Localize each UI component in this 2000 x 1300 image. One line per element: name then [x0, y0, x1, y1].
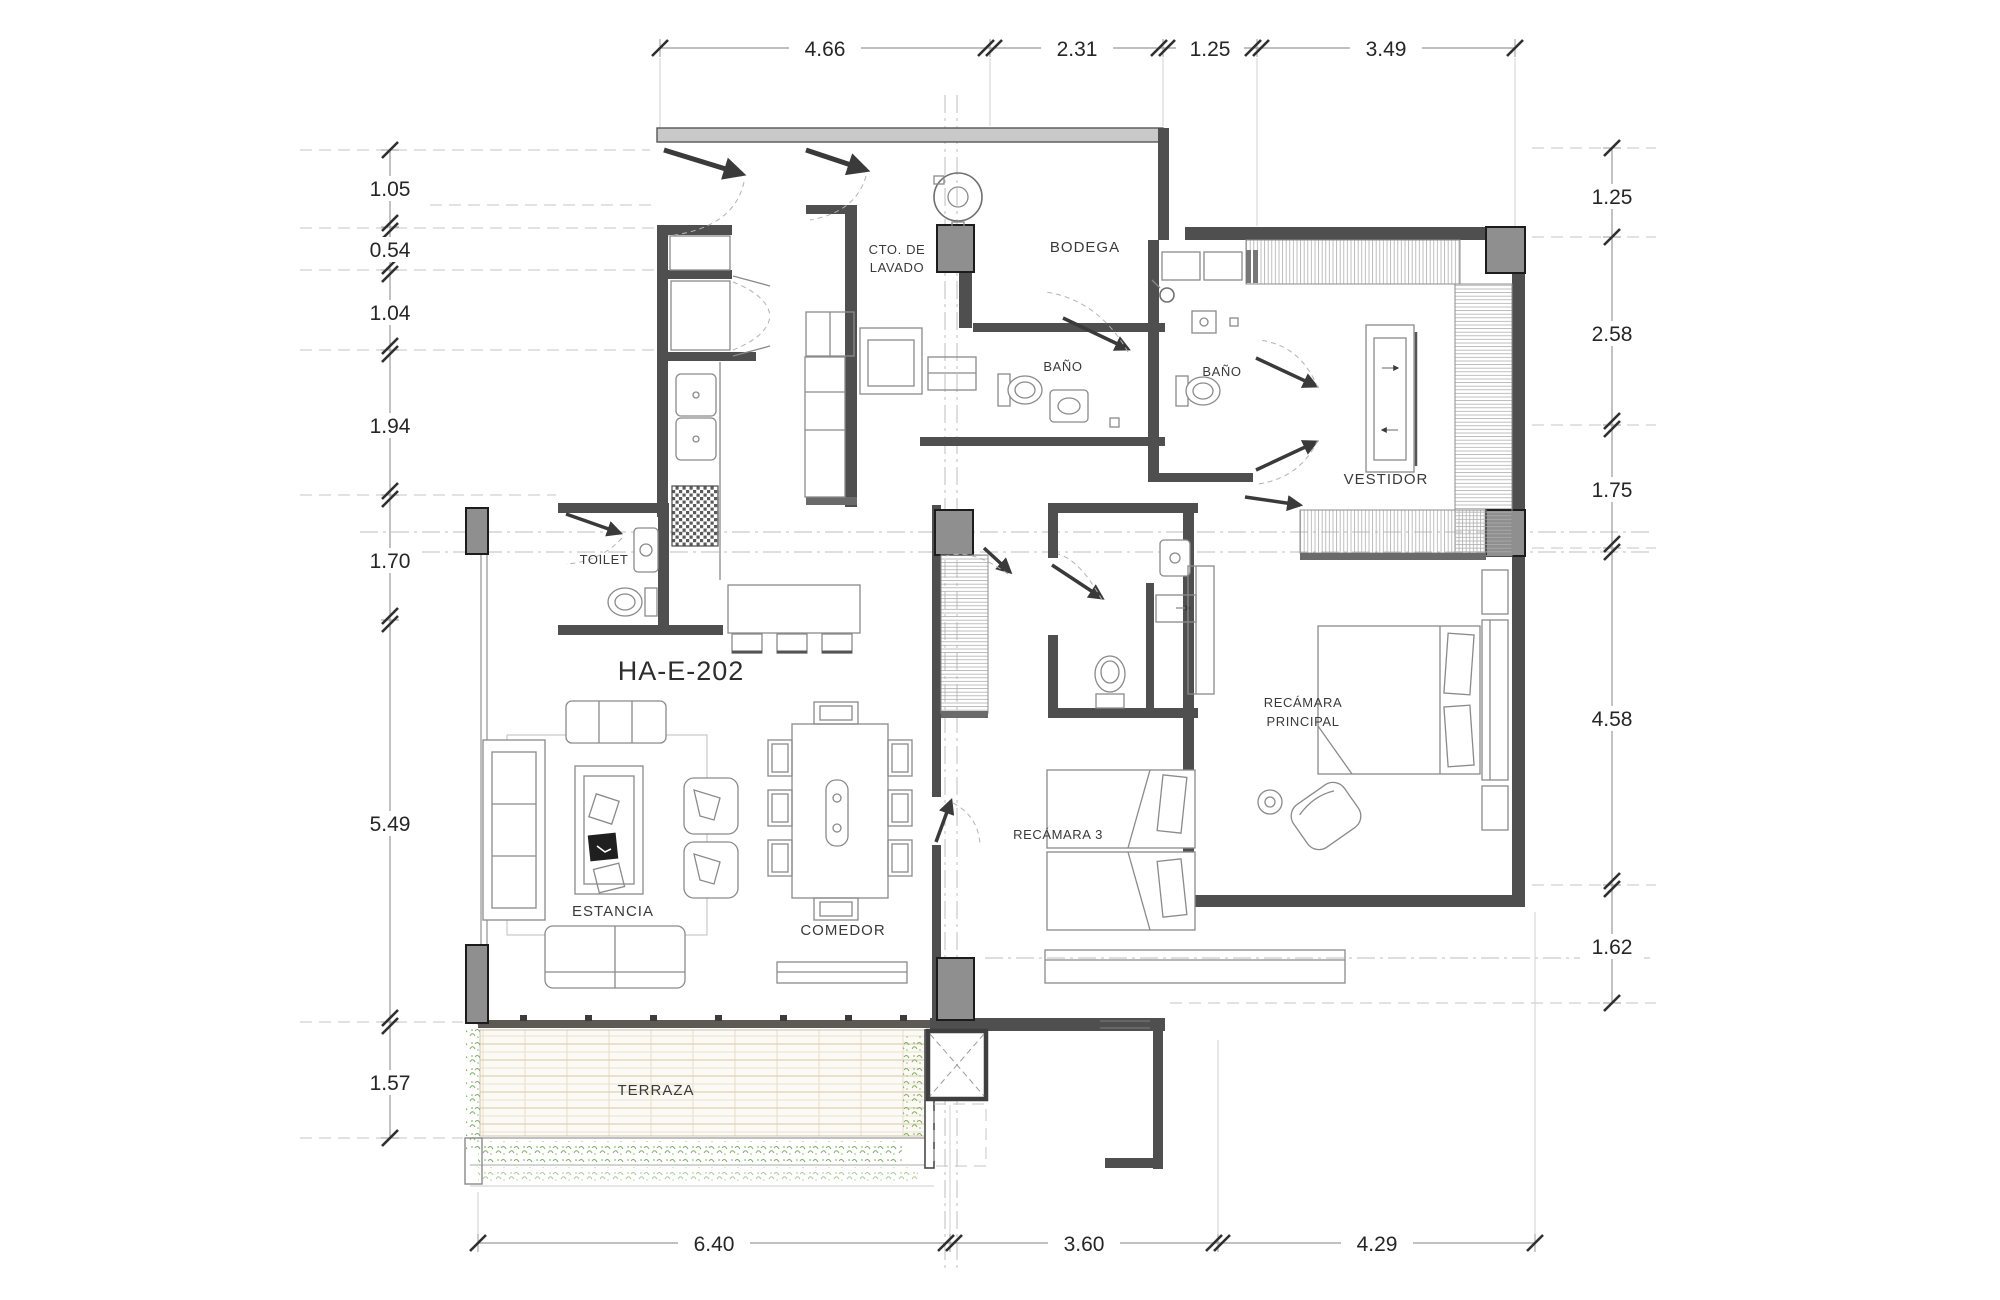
dim-bottom-1: 3.60	[1064, 1233, 1105, 1256]
terrace-area	[465, 1010, 936, 1186]
bar-stool	[777, 634, 807, 653]
dim-left-6: 1.57	[370, 1072, 411, 1095]
stove	[672, 486, 718, 546]
dim-left-4: 1.70	[370, 550, 411, 573]
washbasin	[1050, 390, 1088, 422]
kitchen-island	[728, 585, 860, 633]
floor-plan-canvas: CTO. DE LAVADO BODEGA BAÑO BAÑO VESTIDOR…	[0, 0, 2000, 1300]
dim-bottom-0: 6.40	[694, 1233, 735, 1256]
room-label-terraza: TERRAZA	[617, 1082, 694, 1099]
room-label-bano-2: BAÑO	[1202, 364, 1241, 379]
lounge-chair	[1286, 777, 1367, 855]
room-labels: CTO. DE LAVADO BODEGA BAÑO BAÑO VESTIDOR…	[572, 239, 1428, 1099]
decor-item	[588, 833, 619, 862]
column	[937, 225, 974, 272]
wc	[1008, 376, 1042, 404]
washbasin	[634, 528, 658, 572]
floor-plan-drawing: CTO. DE LAVADO BODEGA BAÑO BAÑO VESTIDOR…	[0, 0, 2000, 1300]
recamara3-closet	[941, 555, 988, 713]
dining-table	[792, 724, 888, 898]
vestidor-closet-top	[1246, 240, 1460, 284]
dim-top-0: 4.66	[805, 38, 846, 61]
dim-top-3: 3.49	[1366, 38, 1407, 61]
dimension-chain-right: 1.25 2.58 1.75 4.58 1.62	[1580, 140, 1644, 1011]
dim-top-2: 1.25	[1190, 38, 1231, 61]
dim-right-1: 2.58	[1592, 323, 1633, 346]
side-table	[1258, 790, 1282, 814]
dim-left-3: 1.94	[370, 415, 411, 438]
room-label-cto-lavado: CTO. DE	[869, 242, 926, 257]
room-label-vestidor: VESTIDOR	[1344, 471, 1429, 488]
vestidor-island	[1366, 325, 1414, 472]
dim-right-0: 1.25	[1592, 186, 1633, 209]
column	[466, 945, 488, 1023]
dim-left-0: 1.05	[370, 178, 411, 201]
washbasin	[1160, 540, 1190, 576]
bar-stool	[732, 634, 762, 653]
room-label-recamara-3: RECÁMARA 3	[1013, 827, 1103, 842]
entry-door	[664, 150, 744, 236]
sofa	[566, 701, 666, 743]
shower-box	[1204, 252, 1242, 280]
nightstand	[1482, 570, 1508, 614]
unit-label: HA-E-202	[618, 656, 745, 686]
dim-left-5: 5.49	[370, 813, 411, 836]
recamara3-bath-door	[1052, 554, 1102, 600]
ledge	[1045, 950, 1345, 983]
upper-cabinet	[670, 236, 730, 270]
column	[1486, 227, 1525, 273]
kitchen-counter	[805, 357, 845, 497]
bedroom-furniture	[1045, 325, 1508, 983]
wc	[608, 588, 642, 616]
hall-bath-door	[1046, 292, 1128, 352]
column	[937, 958, 974, 1020]
recamara3-door	[936, 801, 980, 844]
dimension-chain-bottom: 6.40 3.60 4.29	[470, 1229, 1543, 1257]
shower-box	[1162, 252, 1200, 280]
wc-tank	[1096, 694, 1124, 708]
washbasin	[1192, 311, 1216, 333]
armchair	[684, 778, 738, 834]
refrigerator	[671, 281, 730, 350]
service-shaft	[928, 1031, 986, 1166]
bed-principal	[1318, 626, 1480, 774]
living-dining-furniture	[483, 701, 912, 988]
water-heater	[934, 173, 982, 221]
dim-left-2: 1.04	[370, 302, 411, 325]
nightstand	[1482, 786, 1508, 830]
room-label-toilet: TOILET	[580, 552, 629, 567]
kitchen-sink	[676, 418, 716, 460]
dimension-chain-top: 4.66 2.31 1.25 3.49	[652, 34, 1523, 62]
dim-bottom-2: 4.29	[1357, 1233, 1398, 1256]
room-label-bodega: BODEGA	[1050, 239, 1120, 256]
coffee-table	[575, 766, 643, 894]
laundry-appliance	[860, 328, 922, 394]
dim-right-4: 1.62	[1592, 936, 1633, 959]
vestidor-closet-bottom	[1300, 510, 1486, 553]
dim-right-3: 4.58	[1592, 708, 1633, 731]
wc	[1186, 377, 1220, 405]
dim-left-1: 0.54	[370, 239, 411, 262]
wc-tank	[645, 588, 657, 616]
bano2-double-door	[1256, 340, 1318, 484]
shower-head	[1160, 288, 1174, 302]
room-label-bano-1: BAÑO	[1043, 359, 1082, 374]
kitchen-sink	[676, 374, 716, 416]
room-label-comedor: COMEDOR	[800, 922, 885, 939]
dim-top-1: 2.31	[1057, 38, 1098, 61]
room-label-estancia: ESTANCIA	[572, 903, 654, 920]
vestidor-door	[1245, 497, 1300, 505]
armchair	[684, 842, 738, 898]
column	[466, 508, 488, 554]
dim-right-2: 1.75	[1592, 479, 1633, 502]
column	[935, 510, 973, 555]
dimension-chain-left: 1.05 0.54 1.04 1.94 1.70 5.49 1.57	[358, 142, 422, 1146]
bar-stool	[822, 634, 852, 653]
room-label-recamara-principal: RECÁMARA	[1264, 695, 1342, 710]
room-label-recamara-principal: PRINCIPAL	[1266, 714, 1339, 729]
bed-single	[1047, 852, 1195, 930]
headboard	[1482, 620, 1508, 780]
room-label-cto-lavado: LAVADO	[870, 260, 924, 275]
